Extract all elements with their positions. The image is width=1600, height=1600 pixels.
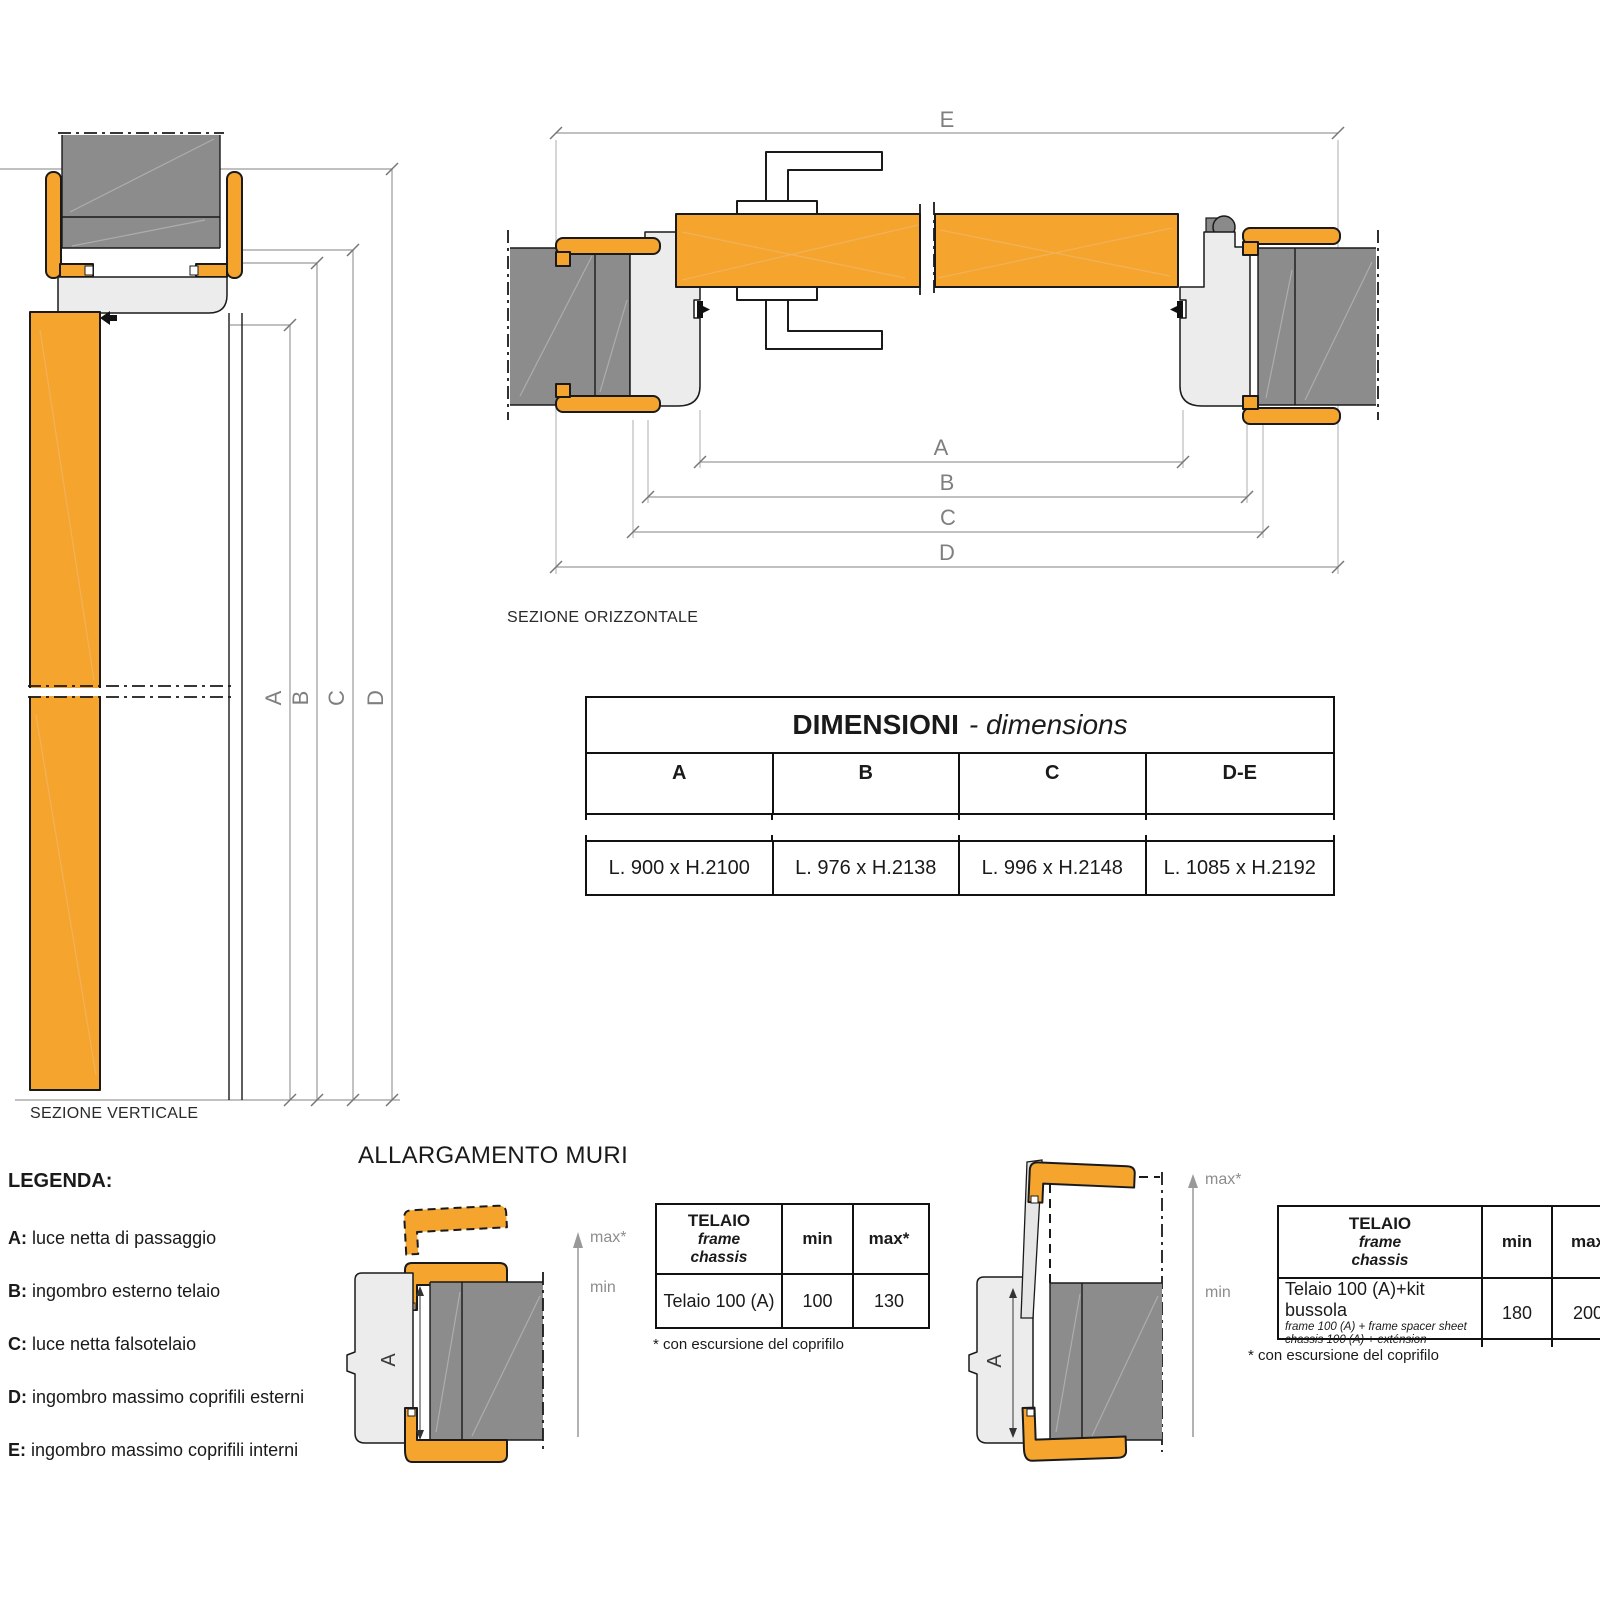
legend-item-c: C:luce netta falsotelaio (8, 1335, 353, 1353)
t2-row-label: Telaio 100 (A)+kit bussola (1285, 1279, 1481, 1321)
dimension-label-b2: B (940, 470, 955, 495)
wall-extension-diagram-1: A max* min (347, 1205, 626, 1462)
legend-item-e: E:ingombro massimo coprifili interni (8, 1441, 353, 1459)
right-door-jamb (1180, 232, 1250, 406)
legend-title: LEGENDA: (8, 1170, 353, 1193)
dimension-label-a2: A (934, 435, 949, 460)
door-frame-head (58, 277, 227, 313)
legend-text-b: ingombro esterno telaio (32, 1281, 220, 1301)
vertical-section-drawing: A B C D (0, 133, 400, 1106)
legend-key-e: E: (8, 1440, 26, 1460)
vertical-section-label: SEZIONE VERTICALE (30, 1105, 198, 1123)
legend-text-d: ingombro massimo coprifili esterni (32, 1387, 304, 1407)
t1-min-value: 100 (783, 1275, 854, 1327)
wall-block (430, 1272, 543, 1452)
legend-key-c: C: (8, 1334, 27, 1354)
t2-row-sub2: chassis 100 (A) + exténsion (1285, 1334, 1427, 1347)
door-leaf (30, 312, 100, 1090)
t1-header-frame: frame (698, 1231, 740, 1249)
leaf-break-lines (920, 202, 934, 296)
t2-header-frame: frame (1359, 1234, 1401, 1252)
t2-max-value: 200 (1553, 1279, 1600, 1347)
legend-key-b: B: (8, 1281, 27, 1301)
telaio-table-1-header: TELAIO frame chassis min max* (657, 1205, 928, 1275)
top-coprifilo-2 (1028, 1162, 1135, 1207)
t2-min-value: 180 (1483, 1279, 1553, 1347)
value-c: L. 996 x H.2148 (960, 842, 1147, 894)
wall-block-2 (1050, 1283, 1162, 1440)
value-b: L. 976 x H.2138 (774, 842, 961, 894)
min-max-arrow-2: max* min (1188, 1171, 1241, 1437)
dimensions-table: DIMENSIONI - dimensions A B C D-E L. 900… (585, 696, 1335, 896)
right-wall-section (1258, 230, 1378, 420)
column-header-de: D-E (1147, 754, 1334, 813)
dimension-label-e: E (940, 107, 955, 132)
dimension-label-d2: D (939, 540, 955, 565)
t1-header-min: min (783, 1205, 854, 1273)
telaio-table-1-row: Telaio 100 (A) 100 130 (657, 1275, 928, 1327)
legend-item-a: A:luce netta di passaggio (8, 1229, 353, 1247)
dimensions-table-value-row: L. 900 x H.2100 L. 976 x H.2138 L. 996 x… (585, 840, 1335, 896)
value-de: L. 1085 x H.2192 (1147, 842, 1334, 894)
wall-section (58, 133, 224, 248)
break-gap (27, 688, 104, 696)
min-label-2: min (1205, 1284, 1231, 1301)
telaio-table-2-header: TELAIO frame chassis min max (1279, 1207, 1600, 1279)
t1-header-telaio: TELAIO (688, 1211, 750, 1231)
dimension-label-c: C (324, 690, 349, 706)
dimensions-title-bold: DIMENSIONI (792, 709, 958, 741)
wall-extension-dashed-outline (1050, 1177, 1160, 1283)
right-gasket (1170, 301, 1183, 318)
dimension-label-b: B (288, 691, 313, 706)
t2-header-telaio: TELAIO (1349, 1214, 1411, 1234)
legend-item-d: D:ingombro massimo coprifili esterni (8, 1388, 353, 1406)
t1-max-value: 130 (854, 1275, 924, 1327)
dimensions-table-header-row: A B C D-E (585, 754, 1335, 815)
legend: LEGENDA: A:luce netta di passaggio B:ing… (8, 1170, 353, 1494)
max-label-1: max* (590, 1229, 626, 1246)
min-label-1: min (590, 1279, 616, 1296)
dimension-label-d: D (363, 690, 388, 706)
column-header-c: C (960, 754, 1147, 813)
t2-row-sub1: frame 100 (A) + frame spacer sheet (1285, 1321, 1467, 1334)
legend-text-c: luce netta falsotelaio (32, 1334, 196, 1354)
telaio-table-2: TELAIO frame chassis min max Telaio 100 … (1277, 1205, 1600, 1340)
wall-extension-title: ALLARGAMENTO MURI (358, 1142, 628, 1170)
wall-extension-diagram-2: A max* min (969, 1160, 1241, 1461)
detached-coprifilo-dashed (404, 1205, 508, 1254)
horizontal-section-drawing: E A B C D (508, 107, 1378, 574)
subframe-lines (229, 313, 242, 1100)
column-header-b: B (774, 754, 961, 813)
opening-letter: A (378, 1353, 400, 1367)
footnote-2: * con escursione del coprifilo (1248, 1347, 1439, 1364)
t2-header-min: min (1483, 1207, 1553, 1277)
legend-text-a: luce netta di passaggio (32, 1228, 216, 1248)
value-a: L. 900 x H.2100 (587, 842, 774, 894)
t1-header-max: max* (854, 1205, 924, 1273)
legend-key-a: A: (8, 1228, 27, 1248)
dimensions-title-italic: - dimensions (969, 709, 1128, 741)
left-gasket (697, 301, 710, 318)
legend-key-d: D: (8, 1387, 27, 1407)
legend-text-e: ingombro massimo coprifili interni (31, 1440, 298, 1460)
dimensions-table-gap (585, 815, 1335, 840)
door-leaf-right-half (935, 214, 1178, 287)
t2-header-max: max (1553, 1207, 1600, 1277)
footnote-1: * con escursione del coprifilo (653, 1336, 844, 1353)
column-header-a: A (587, 754, 774, 813)
t1-header-chassis: chassis (691, 1249, 748, 1267)
dimension-label-c2: C (940, 505, 956, 530)
opening-letter-2: A (984, 1354, 1006, 1368)
max-label-2: max* (1205, 1171, 1241, 1188)
min-max-arrow-1: max* min (573, 1229, 626, 1437)
dimensions-table-title: DIMENSIONI - dimensions (585, 696, 1335, 754)
dimension-label-a: A (261, 690, 286, 705)
telaio-table-2-row: Telaio 100 (A)+kit bussola frame 100 (A)… (1279, 1279, 1600, 1338)
telaio-table-1: TELAIO frame chassis min max* Telaio 100… (655, 1203, 930, 1329)
t2-header-chassis: chassis (1352, 1252, 1409, 1270)
door-leaf-left-half (676, 214, 920, 287)
legend-item-b: B:ingombro esterno telaio (8, 1282, 353, 1300)
t1-row-label: Telaio 100 (A) (657, 1275, 783, 1327)
horizontal-section-label: SEZIONE ORIZZONTALE (507, 609, 698, 627)
